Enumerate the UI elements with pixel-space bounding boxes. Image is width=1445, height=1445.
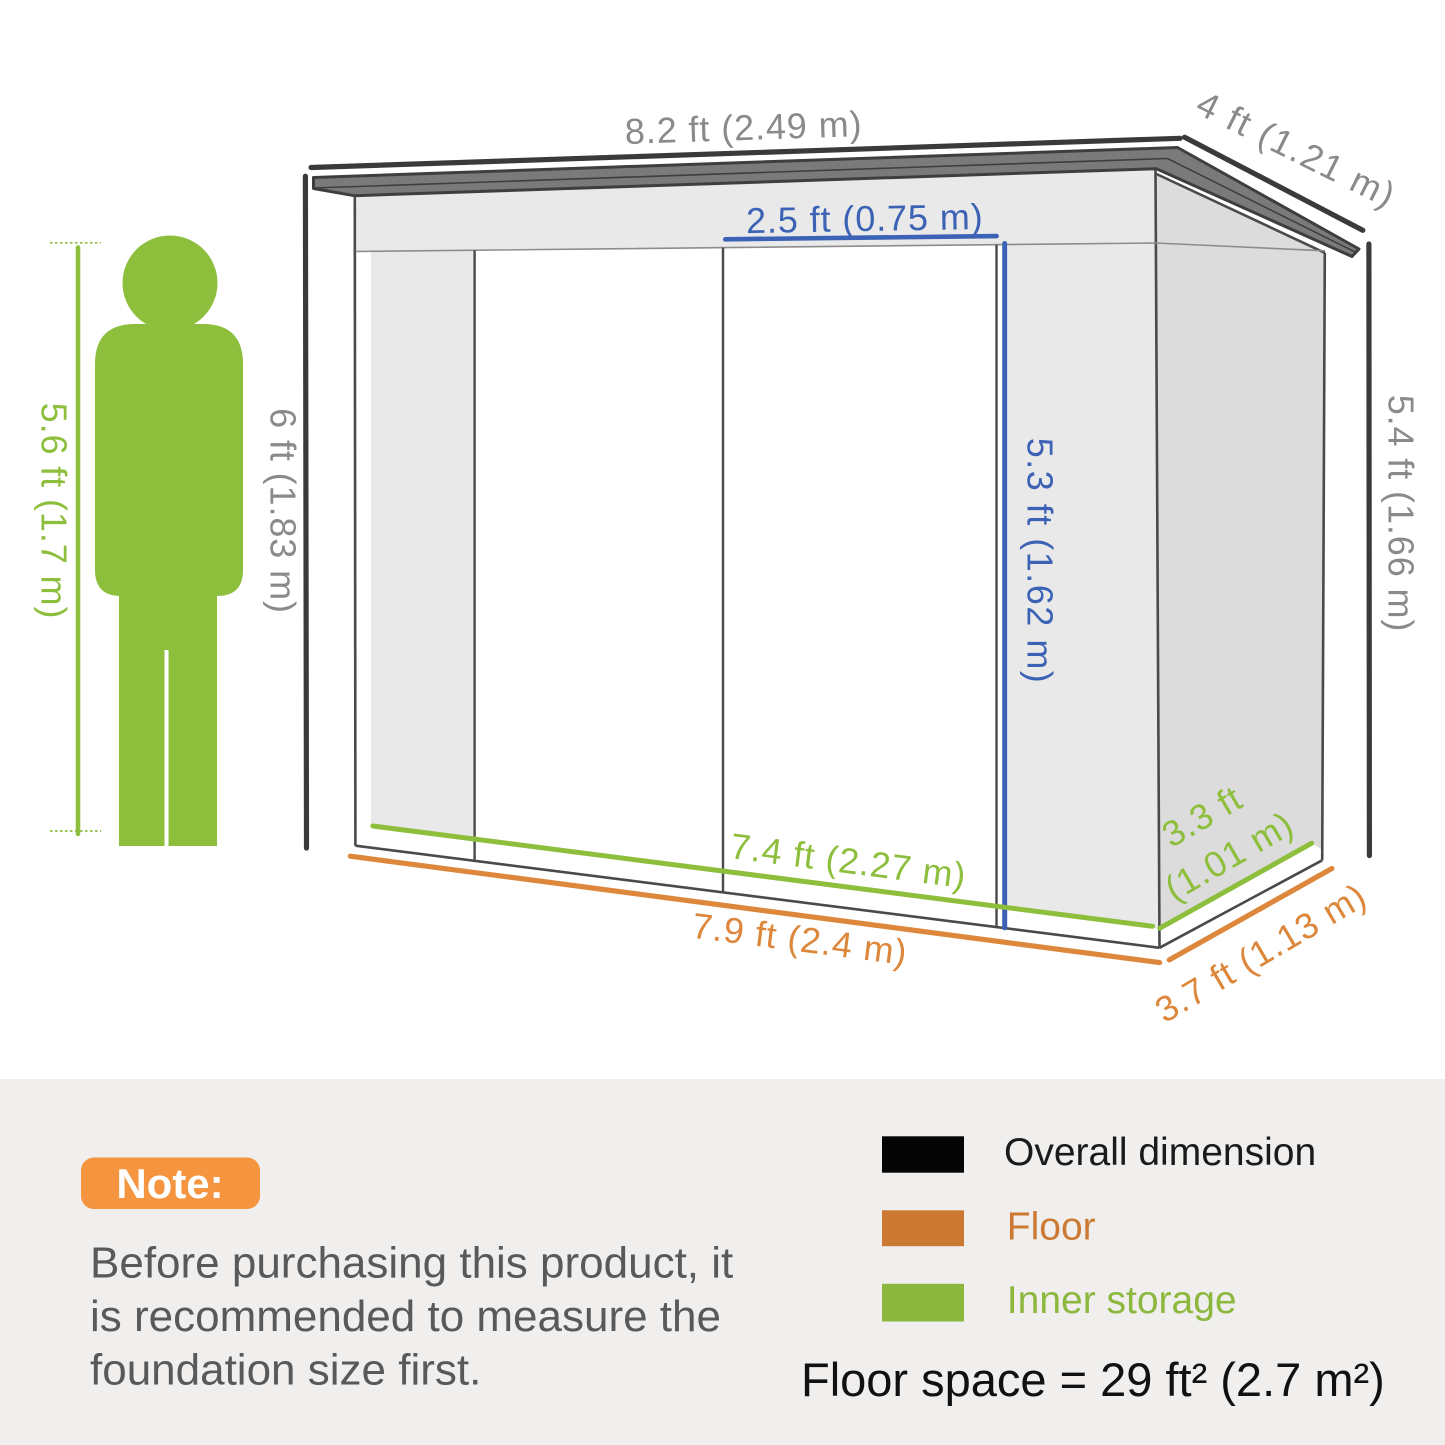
svg-text:is recommended to measure the: is recommended to measure the — [90, 1292, 721, 1341]
svg-text:Floor: Floor — [1007, 1205, 1096, 1248]
svg-text:6 ft (1.83 m): 6 ft (1.83 m) — [263, 408, 304, 614]
svg-text:Inner storage: Inner storage — [1007, 1279, 1237, 1322]
svg-text:Note:: Note: — [116, 1160, 223, 1207]
svg-text:8.2 ft (2.49 m): 8.2 ft (2.49 m) — [624, 103, 863, 152]
svg-text:Overall dimension: Overall dimension — [1004, 1131, 1316, 1174]
svg-text:5.3 ft (1.62 m): 5.3 ft (1.62 m) — [1020, 438, 1061, 685]
svg-text:2.5 ft (0.75 m): 2.5 ft (0.75 m) — [746, 196, 984, 241]
svg-text:Before purchasing this product: Before purchasing this product, it — [90, 1239, 733, 1288]
svg-text:5.6 ft (1.7 m): 5.6 ft (1.7 m) — [33, 403, 74, 620]
svg-text:foundation size first.: foundation size first. — [90, 1346, 481, 1395]
svg-text:5.4 ft (1.66 m): 5.4 ft (1.66 m) — [1380, 395, 1421, 633]
svg-text:Floor space = 29 ft² (2.7 m²): Floor space = 29 ft² (2.7 m²) — [801, 1353, 1385, 1406]
